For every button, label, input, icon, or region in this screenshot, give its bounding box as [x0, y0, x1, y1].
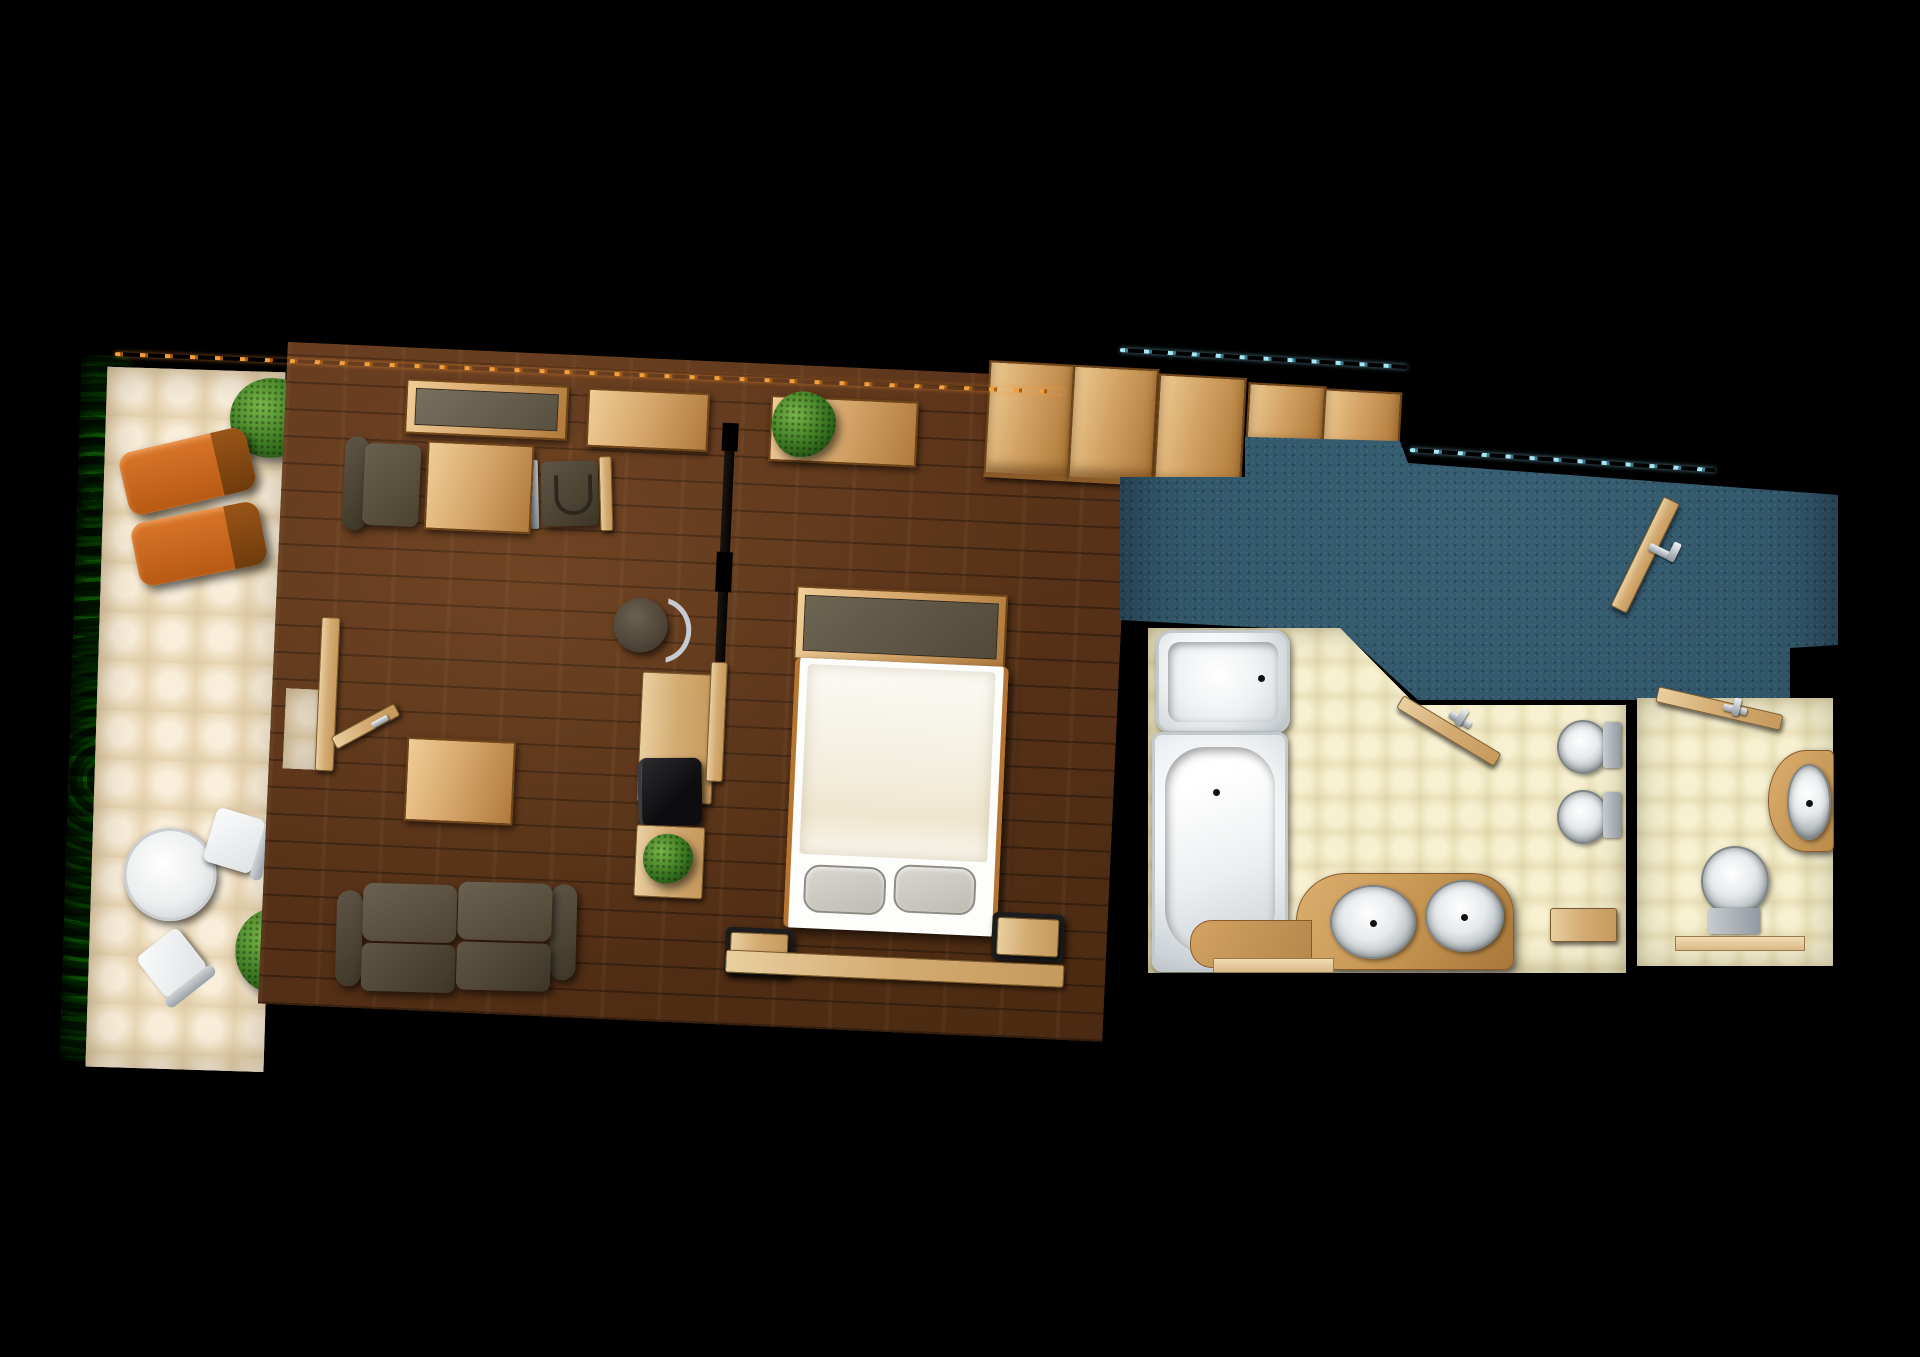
toilet-cistern — [1603, 722, 1621, 768]
sideboard-top — [414, 388, 559, 431]
tv — [638, 758, 702, 826]
wardrobe-door — [983, 360, 1075, 481]
armchair — [341, 430, 422, 539]
toilet — [1557, 720, 1609, 774]
stool — [612, 595, 675, 658]
foot-bench — [793, 585, 1008, 669]
duvet — [799, 664, 995, 862]
shower — [1156, 630, 1290, 734]
threshold — [1213, 958, 1334, 973]
pillow — [893, 864, 977, 916]
desk — [586, 388, 711, 452]
floor-plan-canvas — [0, 0, 1920, 1357]
bidet — [1557, 790, 1609, 844]
vanity-sink — [1330, 885, 1416, 959]
desk-chair — [530, 456, 613, 531]
wc-sink — [1787, 764, 1831, 840]
bath-shelf — [1550, 908, 1617, 942]
coffee-table — [403, 737, 516, 826]
mattress — [783, 657, 1009, 936]
wc-toilet-cistern — [1708, 908, 1760, 934]
nightstand — [991, 912, 1065, 963]
double-bed — [775, 583, 1009, 986]
wc-threshold — [1675, 936, 1805, 951]
room-wc — [1637, 640, 1837, 970]
pillow — [803, 864, 887, 916]
coffee-table — [424, 440, 535, 534]
room-bathroom — [1148, 628, 1626, 976]
wc-toilet — [1701, 846, 1769, 916]
sideboard — [404, 378, 569, 440]
sofa — [334, 876, 577, 1003]
vanity-sink — [1425, 880, 1504, 952]
bidet-cistern — [1603, 792, 1621, 838]
